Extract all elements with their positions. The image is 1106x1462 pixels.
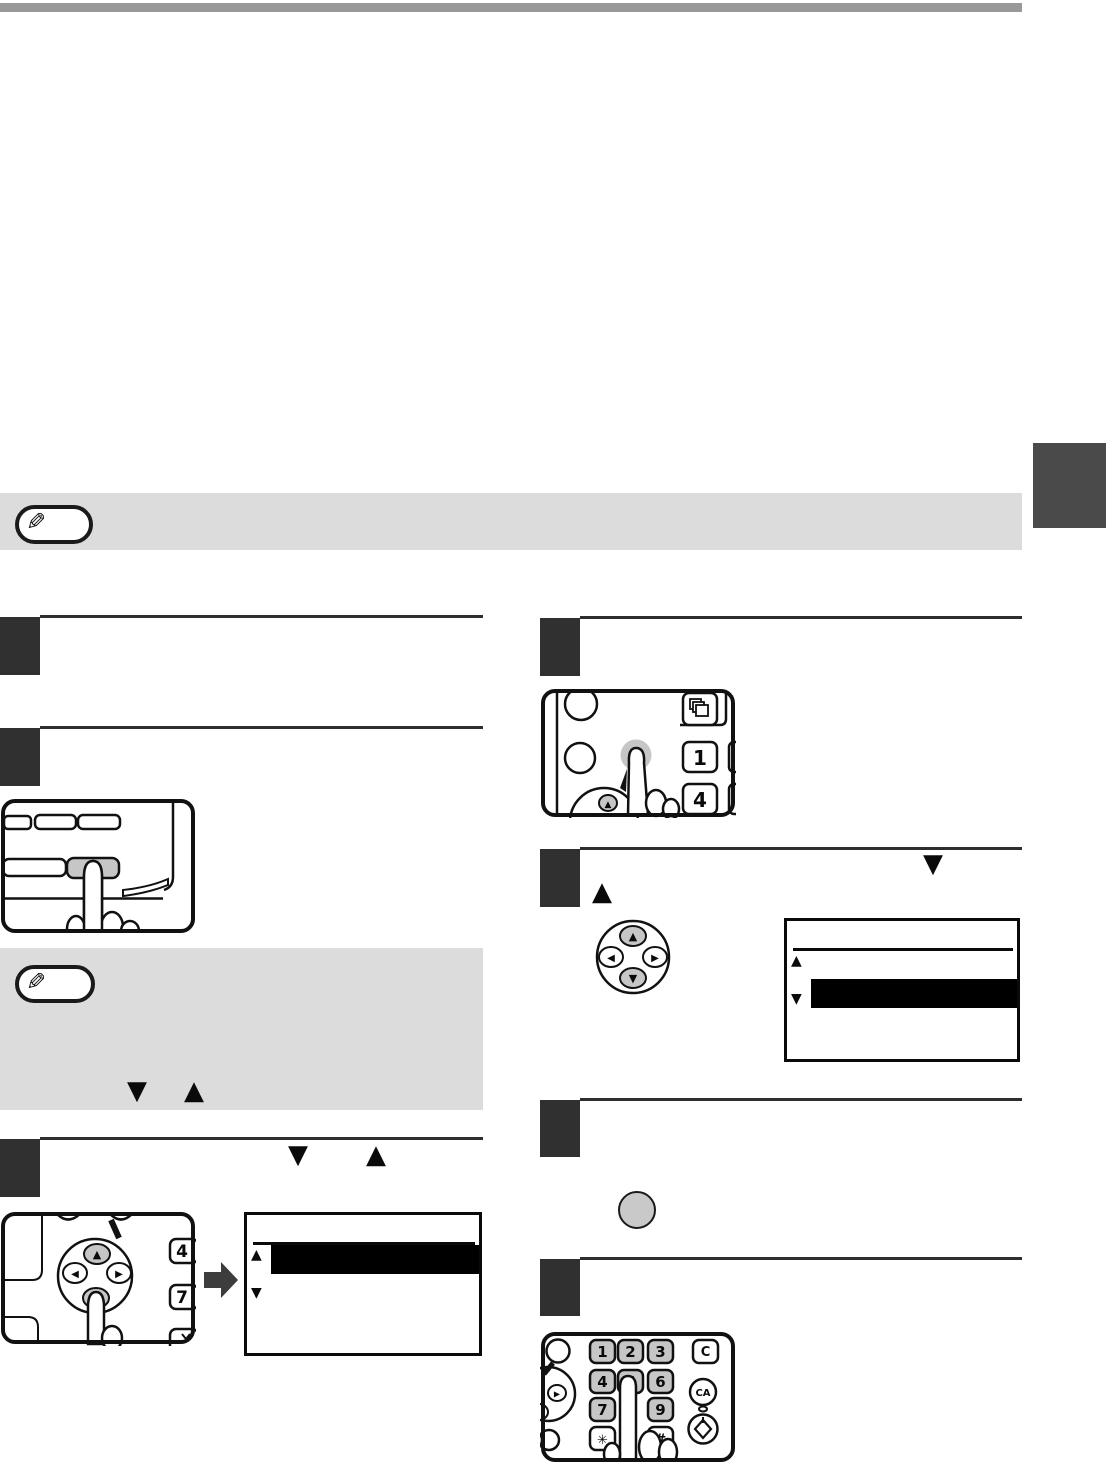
scroll-up-icon: ▲ bbox=[791, 954, 802, 968]
next-step-arrow-icon bbox=[204, 1260, 238, 1300]
up-arrow-icon: ▲ bbox=[629, 930, 638, 943]
numeric-keypad-illustration: ▶ 1 2 3 4 5 6 7 9 ✳ # C CA bbox=[540, 1332, 736, 1462]
key-label: 1 bbox=[597, 1343, 607, 1361]
round-key bbox=[565, 689, 597, 720]
chapter-side-tab bbox=[1033, 443, 1106, 528]
up-arrow-symbol: ▲ bbox=[184, 1078, 204, 1104]
round-key bbox=[547, 1340, 570, 1363]
key-label: 7 bbox=[176, 1288, 188, 1308]
round-key-inline-icon bbox=[618, 1191, 656, 1229]
panel-key bbox=[78, 815, 120, 829]
pencil-icon: ✎ bbox=[26, 510, 46, 534]
key-label: CA bbox=[695, 1388, 710, 1399]
step-rule bbox=[580, 616, 1022, 619]
right-arrow-icon: ▶ bbox=[651, 953, 659, 964]
key-label: 1 bbox=[693, 746, 707, 770]
step-number-box bbox=[540, 849, 580, 907]
panel-illustration-arrow-pad: ▲ ◀ ▶ ▼ 4 7 bbox=[0, 1212, 196, 1346]
scroll-down-icon: ▼ bbox=[791, 992, 802, 1006]
step-number-box bbox=[0, 728, 40, 786]
step-rule bbox=[580, 1257, 1022, 1260]
selected-menu-item-bar bbox=[811, 979, 1017, 1008]
display-screen: ▲ ▼ bbox=[244, 1212, 482, 1356]
step-number-box bbox=[0, 617, 40, 675]
panel-key bbox=[4, 816, 31, 829]
right-arrow-icon: ▶ bbox=[115, 1269, 123, 1280]
key-label: 7 bbox=[597, 1401, 607, 1419]
scroll-down-icon: ▼ bbox=[251, 1286, 262, 1300]
display-divider bbox=[793, 948, 1013, 951]
key-label: 4 bbox=[597, 1373, 607, 1391]
step-rule bbox=[580, 847, 1022, 850]
note-bar: ✎ bbox=[0, 493, 1022, 550]
up-arrow-symbol: ▲ bbox=[592, 879, 612, 905]
manual-page: ✎ ✎ ▼ ▲ ▼ ▲ bbox=[0, 0, 1106, 1462]
key-label: 4 bbox=[693, 788, 707, 812]
up-arrow-icon: ▲ bbox=[93, 1248, 102, 1261]
note-icon-pill: ✎ bbox=[15, 505, 93, 544]
down-arrow-icon: ▼ bbox=[629, 972, 638, 985]
panel-illustration-press-round-key: 1 4 ▲ bbox=[540, 689, 736, 818]
key-label: 4 bbox=[176, 1242, 188, 1262]
up-arrow-icon: ▲ bbox=[605, 800, 612, 810]
step-rule bbox=[580, 1098, 1022, 1101]
step-number-box bbox=[540, 1100, 580, 1157]
finger bbox=[639, 1431, 661, 1462]
down-arrow-symbol: ▼ bbox=[923, 851, 943, 877]
key-label: 6 bbox=[655, 1373, 665, 1391]
step-number-box bbox=[540, 1259, 580, 1316]
finger bbox=[620, 1376, 636, 1462]
step-number-box bbox=[540, 618, 580, 676]
left-arrow-icon: ◀ bbox=[607, 953, 615, 964]
key-label: C bbox=[701, 1345, 711, 1360]
page-top-bar bbox=[0, 3, 1022, 12]
step-number-box bbox=[0, 1139, 40, 1197]
step-rule bbox=[40, 615, 483, 618]
key-label: 9 bbox=[655, 1401, 665, 1419]
key-label: 3 bbox=[655, 1343, 665, 1361]
display-screen: ▲ ▼ bbox=[784, 918, 1020, 1062]
step-rule bbox=[40, 726, 483, 729]
right-arrow-icon: ▶ bbox=[554, 1390, 561, 1399]
panel-key bbox=[3, 859, 66, 876]
panel-illustration-press-key bbox=[0, 799, 196, 933]
down-arrow-symbol: ▼ bbox=[288, 1142, 308, 1168]
left-arrow-icon: ◀ bbox=[71, 1269, 79, 1280]
up-arrow-symbol: ▲ bbox=[366, 1142, 386, 1168]
down-arrow-symbol: ▼ bbox=[127, 1078, 147, 1104]
arrow-pad-illustration: ▲ ◀ ▶ ▼ bbox=[594, 918, 672, 996]
note-box: ✎ ▼ ▲ bbox=[0, 948, 483, 1110]
pencil-icon: ✎ bbox=[26, 970, 46, 994]
step-rule bbox=[40, 1137, 483, 1140]
note-icon-pill: ✎ bbox=[15, 965, 95, 1003]
round-key bbox=[565, 743, 595, 773]
selected-menu-item-bar bbox=[271, 1245, 479, 1274]
panel-key bbox=[35, 815, 76, 829]
key-label: 2 bbox=[625, 1343, 635, 1361]
scroll-up-icon: ▲ bbox=[251, 1248, 262, 1262]
